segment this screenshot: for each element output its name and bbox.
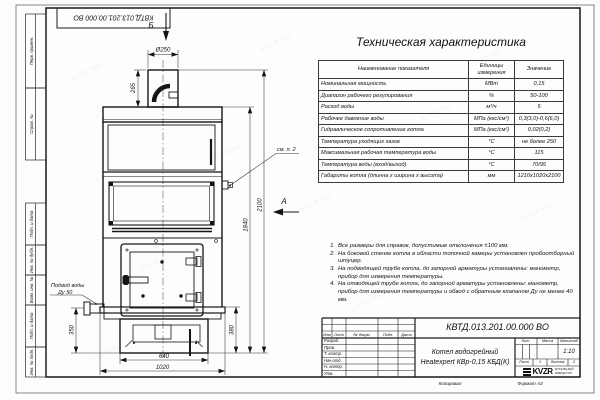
note-number: 4. [326, 281, 335, 304]
door-hinge [186, 294, 197, 301]
dim-inlet-height: 350 [70, 324, 76, 335]
section-arrow-b [163, 13, 169, 41]
company-name: КОТЕЛЬНЫЙ ЗАВОД РЭП [555, 368, 574, 375]
kvzr-logo-text: KVZR [533, 367, 553, 376]
row-name: Рабочее давление воды [319, 113, 469, 125]
stamp-label: Взам. инв. № [29, 276, 34, 303]
company-name-line2: ЗАВОД РЭП [555, 372, 574, 375]
row-value: 0,02(0,2) [515, 125, 564, 137]
row-value: 0,3(3,0)-0,6(6,0) [515, 113, 564, 125]
stamp-label: Перв. примен. [29, 37, 34, 66]
sheet-label: Лист [515, 359, 533, 366]
row-name: Номинальная мощность [319, 79, 469, 91]
boiler-front-view [84, 13, 299, 358]
stamp-label: Инв. № подл. [29, 349, 34, 376]
callout-water-inlet-dn: Ду 50 [57, 290, 73, 296]
note-item: 2.На боковой стенке котла в области топо… [326, 251, 576, 266]
kvzr-logo-icon [523, 368, 531, 376]
water-inlet-stub [84, 302, 90, 315]
table-row: Максимальная рабочая температура воды°С1… [319, 148, 564, 160]
title-block-doc-number: КВТД.013.201.00.000 ВО [416, 320, 579, 335]
row-name: Габариты котла (длинна х ширина х высота… [319, 171, 469, 183]
note-text: На подводящей трубе котла, до запорной а… [338, 266, 576, 281]
sampling-fitting [222, 181, 228, 189]
notes-list: 1.Все размеры для справок, допустимые от… [326, 243, 576, 304]
spec-table-title: Техническая характеристика [318, 35, 564, 49]
product-name: Котел водогрейный Heatexpert КВр-0,15 КБ… [416, 340, 514, 375]
col-izm: Изм [322, 331, 332, 338]
col-header-name: Наименование показателя [319, 61, 469, 79]
role-utv: Утв. [324, 371, 346, 378]
spec-table-section: Техническая характеристика Наименование … [318, 35, 564, 183]
note-number: 2. [326, 251, 335, 266]
table-row: Температура уходящих газов°Сне более 250 [319, 136, 564, 148]
dim-base-height: 380 [230, 324, 236, 335]
row-name: Температура воды (вход/выход) [319, 159, 469, 171]
scale-label: Масштаб [558, 338, 580, 345]
row-units: °С [469, 136, 515, 148]
row-value: 0,15 [515, 79, 564, 91]
ash-door [121, 244, 203, 316]
footer-format: Формат А3 [495, 379, 565, 388]
stamp-label: Справ. № [29, 114, 34, 134]
drawing-sheet: KVZR.RU KVZR.RU KVZR.RU KVZR.RU KVZR.RU … [0, 0, 600, 400]
row-value: 5 [515, 102, 564, 114]
lit-label: Лит. [515, 338, 537, 345]
top-doc-number: КВТД.013.201.00.000 ВО [73, 14, 153, 21]
row-value: 70/95 [515, 159, 564, 171]
footer-copied: Копировал [400, 379, 500, 388]
product-name-line1: Котел водогрейный [416, 348, 514, 357]
sheets-label: Листов [547, 359, 568, 366]
table-row: Диапазон рабочего регулирования%50-100 [319, 90, 564, 102]
table-row: Номинальная мощностьМВт0,15 [319, 79, 564, 91]
table-row: Габариты котла (длинна х ширина х высота… [319, 171, 564, 183]
note-item: 4.На отводящей трубе котла, до запорной … [326, 281, 576, 304]
sheets-value: 2 [568, 359, 580, 366]
label-section-b: Б [148, 21, 153, 30]
callout-water-inlet: Подвод воды [51, 283, 84, 289]
row-units: °С [469, 148, 515, 160]
col-data: Дата [398, 331, 415, 338]
stamp-label: Подп. и дата [29, 210, 34, 238]
note-text: На боковой стенке котла в области топочн… [338, 251, 576, 266]
note-number: 1. [326, 243, 335, 251]
row-units: МВт [469, 79, 515, 91]
sheet-value: 1 [533, 359, 547, 366]
callout-see-note: см. п. 2 [277, 147, 296, 153]
stamp-label: Подп. и дата [29, 312, 34, 340]
scale-value: 1:10 [558, 345, 580, 359]
note-item: 1.Все размеры для справок, допустимые от… [326, 243, 576, 251]
note-text: На отводящей трубе котла, до запорной ар… [338, 281, 576, 304]
row-value: не более 250 [515, 136, 564, 148]
door-hinge [186, 258, 197, 265]
col-podp: Подп. [378, 331, 398, 338]
company-logo: KVZR КОТЕЛЬНЫЙ ЗАВОД РЭП [516, 366, 580, 377]
furnace-door [109, 182, 214, 225]
row-units: мм [469, 171, 515, 183]
row-units: МПа (кгс/см²) [469, 125, 515, 137]
dim-base-width: 640 [159, 354, 170, 360]
row-value: 1210х1020х2100 [515, 171, 564, 183]
row-name: Гидравлическое сопротивление котла [319, 125, 469, 137]
row-name: Максимальная рабочая температура воды [319, 148, 469, 160]
dim-total-height: 2100 [258, 198, 264, 213]
row-units: МПа (кгс/см²) [469, 113, 515, 125]
note-number: 3. [326, 266, 335, 281]
note-text: Все размеры для справок, допустимые откл… [338, 243, 576, 251]
damper-handle [154, 86, 170, 102]
row-units: % [469, 90, 515, 102]
door-handle [128, 277, 148, 283]
row-units: °С [469, 159, 515, 171]
row-value: 50-100 [515, 90, 564, 102]
row-name: Температура уходящих газов [319, 136, 469, 148]
table-row: Температура воды (вход/выход)°С70/95 [319, 159, 564, 171]
view-arrow-a [273, 209, 299, 216]
table-row: Рабочее давление водыМПа (кгс/см²)0,3(3,… [319, 113, 564, 125]
table-row: Гидравлическое сопротивление котлаМПа (к… [319, 125, 564, 137]
dim-total-width: 1020 [156, 365, 170, 371]
label-view-a: А [280, 197, 286, 206]
col-docum: № докум. [346, 331, 378, 338]
dim-chimney-height: 265 [131, 82, 137, 94]
row-name: Расход воды [319, 102, 469, 114]
side-stamp-labels: Перв. примен. Справ. № Подп. и дата Инв.… [29, 37, 34, 376]
table-header-row: Наименование показателя Единицы измерени… [319, 61, 564, 79]
stamp-label: Инв. № дубл. [29, 247, 34, 273]
dim-body-height: 1840 [244, 218, 250, 232]
mass-label: Масса [537, 338, 558, 345]
upper-door [108, 125, 215, 170]
dim-chimney-diameter: Ø250 [155, 48, 171, 54]
col-header-value: Значение [515, 61, 564, 79]
row-units: м³/ч [469, 102, 515, 114]
spec-table: Наименование показателя Единицы измерени… [318, 60, 564, 183]
table-row: Расход водым³/ч5 [319, 102, 564, 114]
row-value: 115 [515, 148, 564, 160]
note-item: 3.На подводящей трубе котла, до запорной… [326, 266, 576, 281]
col-header-units: Единицы измерения [469, 61, 515, 79]
product-name-line2: Heatexpert КВр-0,15 КБД(К) [416, 358, 514, 367]
col-list: Лист [332, 331, 346, 338]
row-name: Диапазон рабочего регулирования [319, 90, 469, 102]
